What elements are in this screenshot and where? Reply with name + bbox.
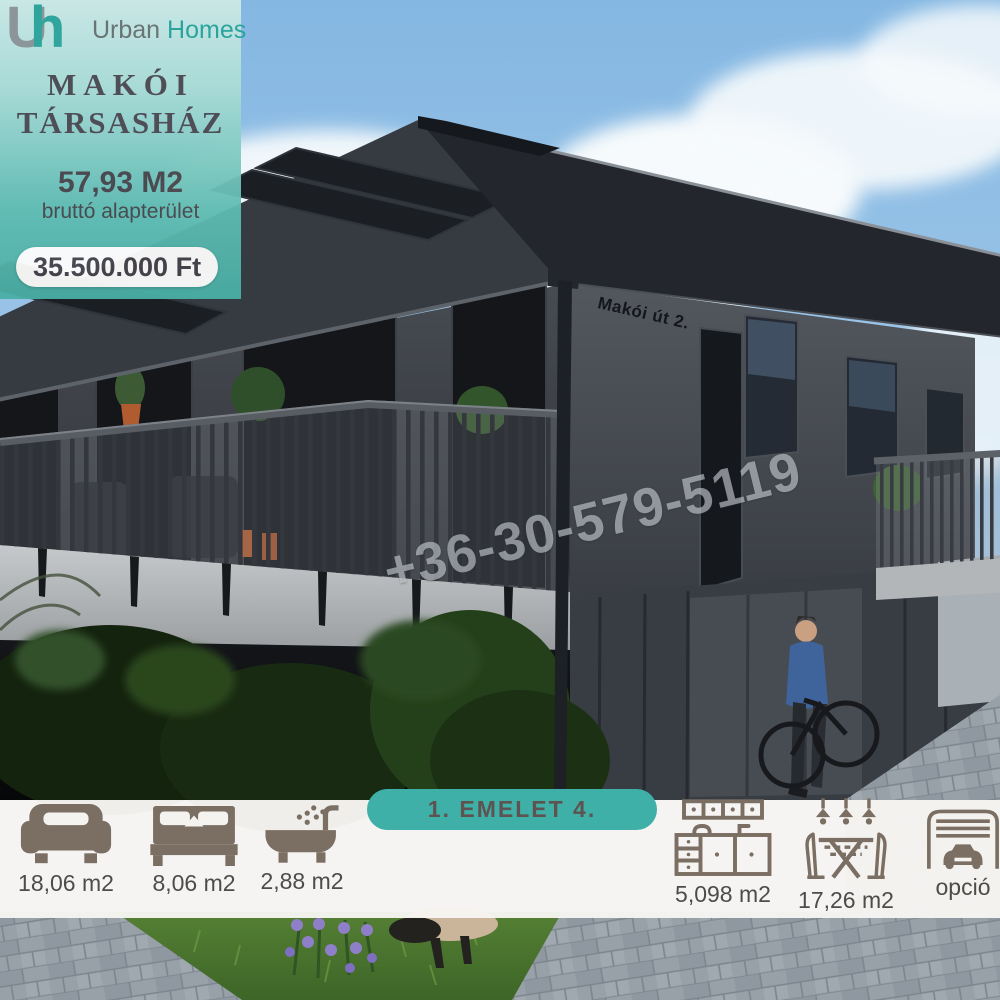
garage-icon bbox=[924, 804, 1000, 870]
listing-title: MAKÓI TÁRSASHÁZ bbox=[0, 66, 241, 142]
bed-icon bbox=[149, 806, 239, 866]
room-bedroom-area: 8,06 m2 bbox=[152, 870, 235, 897]
listing-title-line2: TÁRSASHÁZ bbox=[0, 104, 241, 142]
room-living: 18,06 m2 bbox=[10, 804, 122, 897]
price-badge: 35.500.000 Ft bbox=[16, 247, 218, 287]
room-bathroom: 2,88 m2 bbox=[252, 804, 352, 895]
brand-logo: Uh Urban Homes bbox=[6, 0, 241, 54]
room-garage: opció bbox=[918, 804, 1000, 901]
flyer-canvas: Makói út 2. +36-30-579-5119 Uh Urban Hom… bbox=[0, 0, 1000, 1000]
listing-title-line1: MAKÓI bbox=[0, 66, 241, 104]
bath-icon bbox=[260, 804, 344, 864]
info-panel: Uh Urban Homes MAKÓI TÁRSASHÁZ 57,93 M2 … bbox=[0, 0, 241, 299]
room-kitchen: 5,098 m2 bbox=[664, 799, 782, 908]
gross-area-value: 57,93 M2 bbox=[0, 166, 241, 200]
logo-h-glyph: h bbox=[30, 0, 65, 60]
kitchen-icon bbox=[673, 799, 773, 877]
room-living-area: 18,06 m2 bbox=[18, 870, 114, 897]
brand-name-secondary: Homes bbox=[167, 16, 246, 44]
room-bathroom-area: 2,88 m2 bbox=[260, 868, 343, 895]
floor-badge: 1. EMELET 4. bbox=[367, 789, 657, 830]
right-mini-balcony bbox=[873, 453, 1000, 600]
brand-name-primary: Urban bbox=[92, 16, 160, 44]
room-kitchen-area: 5,098 m2 bbox=[675, 881, 771, 908]
room-dining-area: 17,26 m2 bbox=[798, 887, 894, 914]
dining-icon bbox=[798, 797, 894, 883]
sofa-icon bbox=[20, 804, 112, 866]
room-bedroom: 8,06 m2 bbox=[138, 806, 250, 897]
room-garage-option: opció bbox=[936, 874, 991, 901]
gross-area-label: bruttó alapterület bbox=[0, 200, 241, 224]
room-dining: 17,26 m2 bbox=[790, 797, 902, 914]
brand-wordmark: Urban Homes bbox=[92, 16, 246, 45]
